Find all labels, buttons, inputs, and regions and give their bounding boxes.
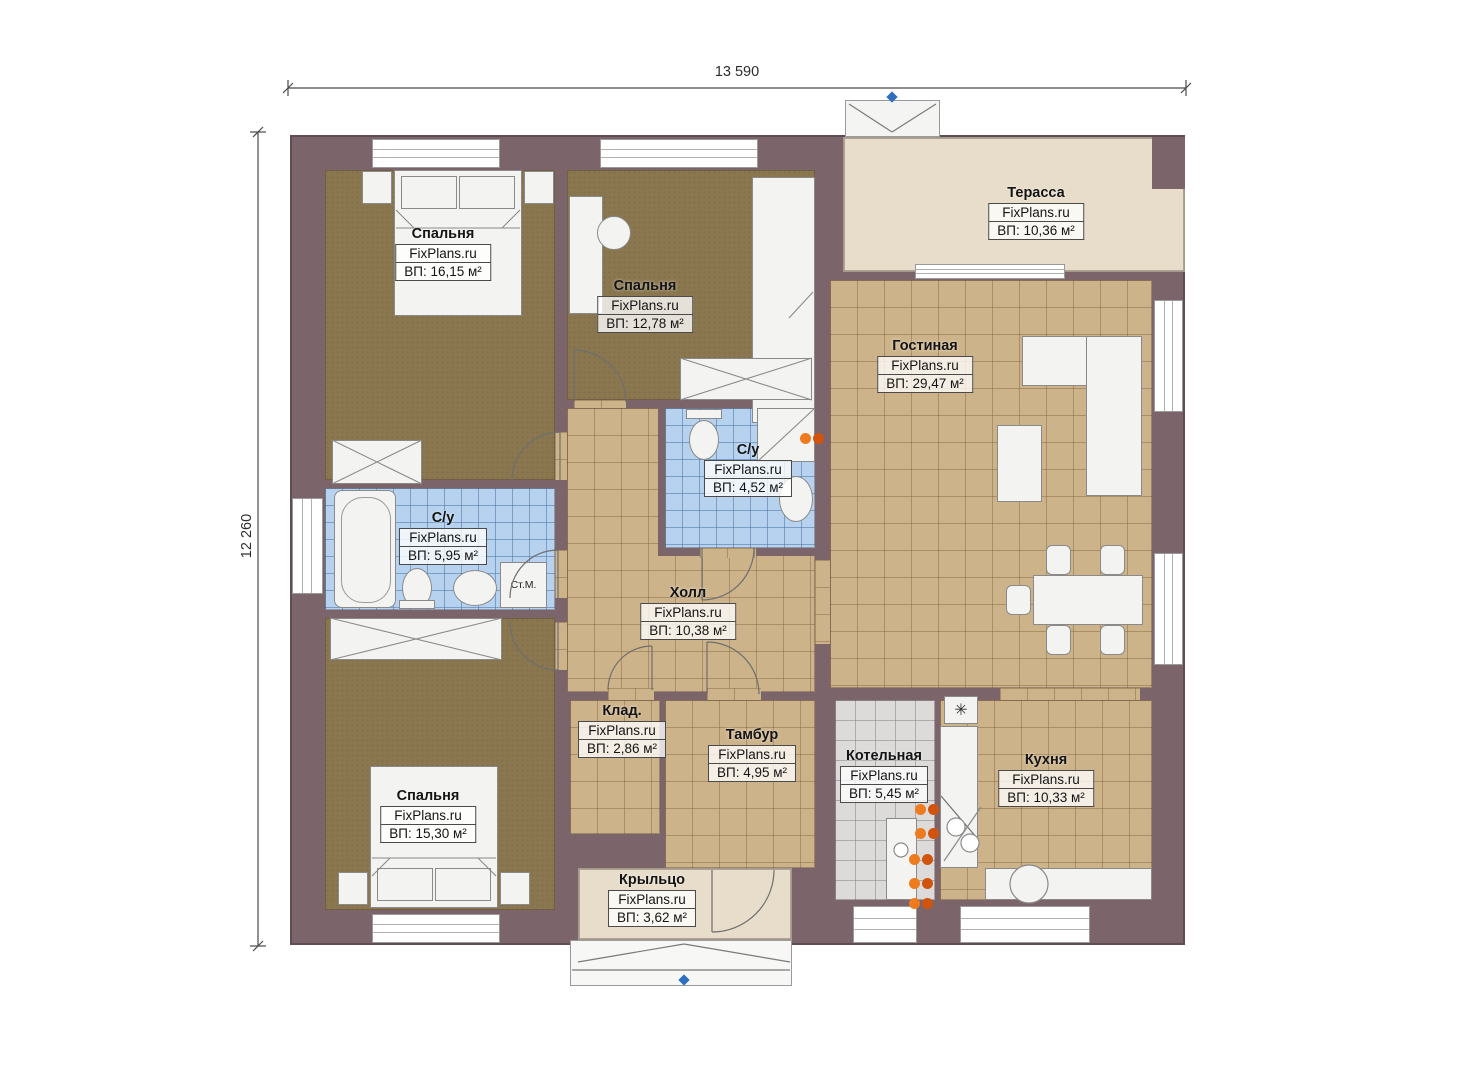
room-name: Клад. xyxy=(578,703,666,719)
window xyxy=(600,139,758,168)
pillow xyxy=(377,868,433,901)
radiator-icon xyxy=(909,854,920,865)
dimension-left-label: 12 260 xyxy=(239,501,255,571)
room-brand: FixPlans.ru xyxy=(640,603,736,622)
radiator-icon xyxy=(909,878,920,889)
room-brand: FixPlans.ru xyxy=(578,721,666,740)
passage-kitchen-living xyxy=(1000,688,1140,700)
terrace-wall-stub xyxy=(1152,137,1185,189)
room-label-boiler: Котельная FixPlans.ru ВП: 5,45 м² xyxy=(840,748,928,803)
room-label-bath-center: С/у FixPlans.ru ВП: 4,52 м² xyxy=(704,442,792,497)
room-brand: FixPlans.ru xyxy=(399,528,487,547)
sink xyxy=(453,570,497,606)
passage-hall-living xyxy=(815,560,830,644)
nightstand xyxy=(524,171,554,204)
room-area: ВП: 4,52 м² xyxy=(704,479,792,497)
wardrobe xyxy=(680,358,812,400)
room-area: ВП: 10,36 м² xyxy=(988,222,1084,240)
room-brand: FixPlans.ru xyxy=(380,806,476,825)
window xyxy=(372,139,500,168)
radiator-icon xyxy=(915,828,926,839)
room-label-hall: Холл FixPlans.ru ВП: 10,38 м² xyxy=(640,585,736,640)
chair xyxy=(1046,625,1071,655)
room-area: ВП: 15,30 м² xyxy=(380,825,476,843)
room-area: ВП: 12,78 м² xyxy=(597,315,693,333)
door-gap xyxy=(555,622,567,670)
room-label-living: Гостиная FixPlans.ru ВП: 29,47 м² xyxy=(877,338,973,393)
room-brand: FixPlans.ru xyxy=(877,356,973,375)
room-label-kitchen: Кухня FixPlans.ru ВП: 10,33 м² xyxy=(998,752,1094,807)
dimension-top-label: 13 590 xyxy=(687,64,787,80)
room-area: ВП: 10,38 м² xyxy=(640,622,736,640)
room-brand: FixPlans.ru xyxy=(704,460,792,479)
room-label-terrace: Терасса FixPlans.ru ВП: 10,36 м² xyxy=(988,185,1084,240)
bathtub-basin xyxy=(341,497,391,603)
window xyxy=(1154,553,1183,665)
nightstand xyxy=(500,872,530,905)
room-name: Тамбур xyxy=(708,727,796,743)
pillow xyxy=(435,868,491,901)
room-brand: FixPlans.ru xyxy=(840,766,928,785)
room-name: Спальня xyxy=(380,788,476,804)
room-name: Спальня xyxy=(597,278,693,294)
room-area: ВП: 16,15 м² xyxy=(395,263,491,281)
floor-plan-canvas: 13 590 12 260 xyxy=(0,0,1474,1080)
toilet-tank xyxy=(399,600,435,609)
room-area: ВП: 5,95 м² xyxy=(399,547,487,565)
door-gap xyxy=(608,688,654,700)
nightstand xyxy=(362,171,392,204)
dining-table xyxy=(1033,575,1143,625)
room-name: Холл xyxy=(640,585,736,601)
sofa-seat xyxy=(1086,336,1142,496)
window xyxy=(1154,300,1183,412)
room-name: Терасса xyxy=(988,185,1084,201)
tambour-floor xyxy=(665,700,815,868)
window xyxy=(292,498,323,594)
room-area: ВП: 5,45 м² xyxy=(840,785,928,803)
room-brand: FixPlans.ru xyxy=(608,890,696,909)
wardrobe xyxy=(330,618,502,660)
toilet-tank xyxy=(686,409,722,419)
room-brand: FixPlans.ru xyxy=(597,296,693,315)
door-gap xyxy=(555,550,567,598)
nightstand xyxy=(338,872,368,905)
door-gap xyxy=(574,400,626,408)
radiator-icon xyxy=(909,898,920,909)
entry-canopy xyxy=(845,100,940,137)
room-name: Крыльцо xyxy=(608,872,696,888)
room-label-bath-left: С/у FixPlans.ru ВП: 5,95 м² xyxy=(399,510,487,565)
room-label-tambour: Тамбур FixPlans.ru ВП: 4,95 м² xyxy=(708,727,796,782)
window xyxy=(372,914,500,943)
room-name: Котельная xyxy=(840,748,928,764)
chair xyxy=(1100,545,1125,575)
room-label-porch: Крыльцо FixPlans.ru ВП: 3,62 м² xyxy=(608,872,696,927)
door-gap xyxy=(700,548,756,558)
vent-icon: ✳ xyxy=(944,696,978,724)
terrace-door xyxy=(915,264,1065,279)
chair xyxy=(1006,585,1031,615)
desk-chair xyxy=(597,216,631,250)
room-label-bedroom-3: Спальня FixPlans.ru ВП: 15,30 м² xyxy=(380,788,476,843)
room-area: ВП: 2,86 м² xyxy=(578,740,666,758)
kitchen-counter xyxy=(985,868,1152,900)
room-brand: FixPlans.ru xyxy=(708,745,796,764)
pillow xyxy=(401,176,457,209)
room-name: С/у xyxy=(399,510,487,526)
chair xyxy=(1100,625,1125,655)
radiator-icon xyxy=(915,804,926,815)
back-door xyxy=(853,906,917,943)
room-area: ВП: 4,95 м² xyxy=(708,764,796,782)
kitchen-counter xyxy=(940,726,978,868)
room-brand: FixPlans.ru xyxy=(395,244,491,263)
room-brand: FixPlans.ru xyxy=(998,770,1094,789)
door-gap xyxy=(555,432,567,480)
room-area: ВП: 10,33 м² xyxy=(998,789,1094,807)
window xyxy=(960,906,1090,943)
wardrobe xyxy=(332,440,422,484)
room-label-bedroom-1: Спальня FixPlans.ru ВП: 16,15 м² xyxy=(395,226,491,281)
room-area: ВП: 3,62 м² xyxy=(608,909,696,927)
room-brand: FixPlans.ru xyxy=(988,203,1084,222)
door-gap xyxy=(707,688,761,700)
room-name: Гостиная xyxy=(877,338,973,354)
room-label-bedroom-2: Спальня FixPlans.ru ВП: 12,78 м² xyxy=(597,278,693,333)
coffee-table xyxy=(997,425,1042,502)
chair xyxy=(1046,545,1071,575)
washing-machine: Ст.М. xyxy=(500,562,547,608)
room-name: Спальня xyxy=(395,226,491,242)
room-label-storage: Клад. FixPlans.ru ВП: 2,86 м² xyxy=(578,703,666,758)
room-name: Кухня xyxy=(998,752,1094,768)
room-name: С/у xyxy=(704,442,792,458)
radiator-icon xyxy=(800,433,811,444)
pillow xyxy=(459,176,515,209)
room-area: ВП: 29,47 м² xyxy=(877,375,973,393)
